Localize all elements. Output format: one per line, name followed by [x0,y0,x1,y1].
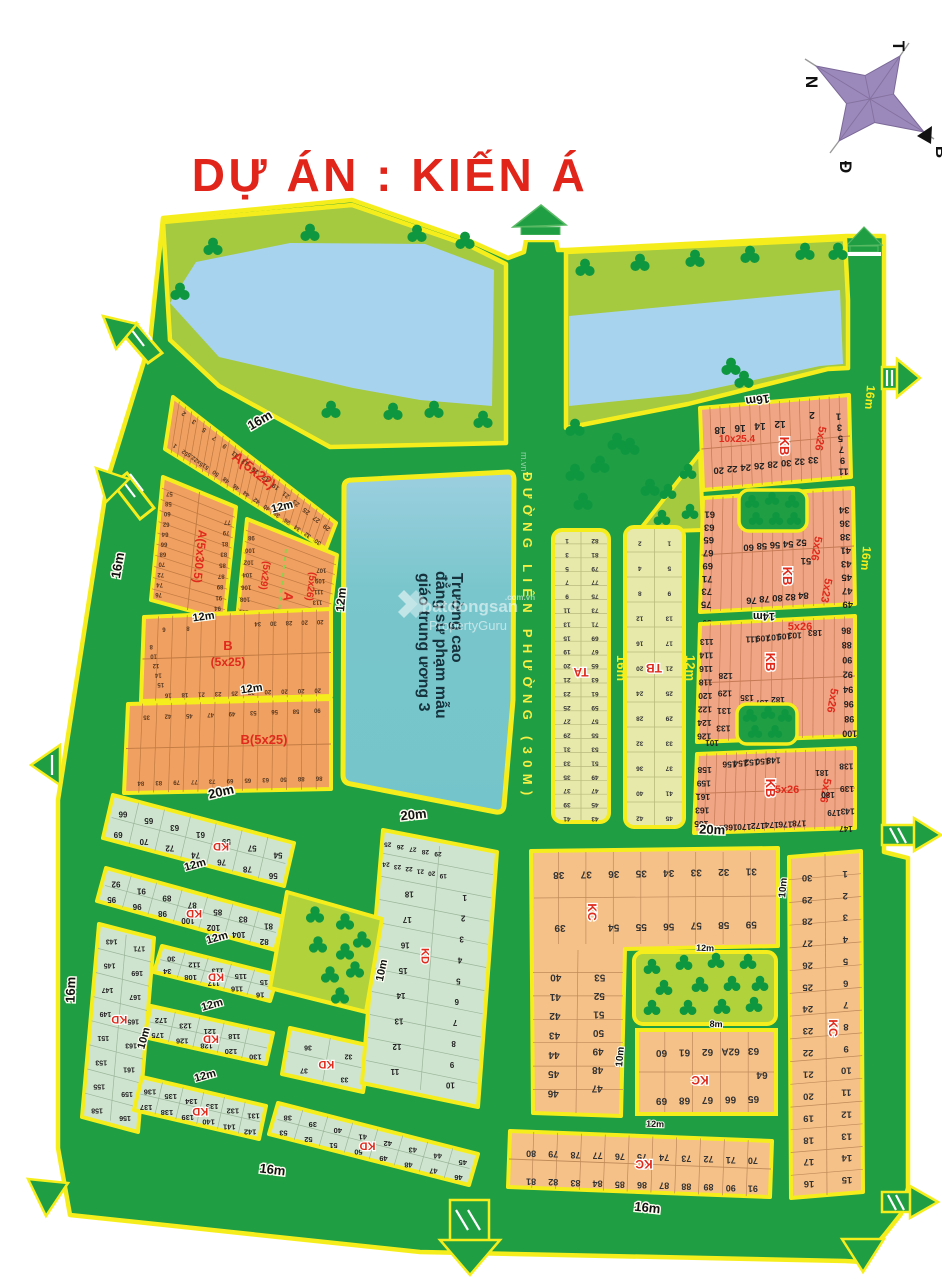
svg-text:84: 84 [593,1179,603,1189]
svg-text:89: 89 [216,583,223,589]
svg-text:KD: KD [111,1013,127,1025]
svg-text:129: 129 [718,688,732,698]
svg-text:98: 98 [844,714,854,724]
svg-text:153: 153 [95,1058,107,1065]
svg-text:4: 4 [638,565,642,572]
svg-text:57: 57 [165,490,172,496]
svg-text:34: 34 [254,620,261,626]
svg-text:44: 44 [433,1152,442,1161]
svg-text:33: 33 [808,454,819,465]
svg-text:22: 22 [727,463,738,474]
svg-text:23: 23 [214,690,221,696]
svg-text:KC: KC [826,1019,840,1037]
svg-text:KD: KD [318,1058,334,1070]
svg-text:KD: KD [208,971,224,983]
svg-text:67: 67 [702,1094,714,1105]
svg-text:49: 49 [591,773,599,780]
svg-text:77: 77 [190,778,197,784]
svg-text:8m: 8m [709,1019,722,1029]
svg-text:76: 76 [217,857,226,866]
svg-text:20m: 20m [699,822,726,838]
svg-text:79: 79 [173,779,180,785]
svg-text:76: 76 [615,1151,625,1161]
svg-text:54: 54 [608,922,620,933]
svg-text:62: 62 [702,1046,714,1057]
svg-text:61: 61 [704,508,715,519]
svg-text:47: 47 [591,1083,603,1094]
svg-text:72: 72 [704,1154,714,1164]
svg-text:36: 36 [304,1043,312,1050]
svg-text:26: 26 [396,843,404,850]
svg-text:41: 41 [665,790,673,797]
svg-text:KC: KC [635,1157,653,1171]
svg-text:148: 148 [766,756,780,766]
svg-text:78: 78 [759,593,770,604]
svg-text:N: N [802,76,821,88]
svg-text:7: 7 [843,999,848,1010]
svg-text:104: 104 [232,930,246,939]
svg-text:25: 25 [384,840,392,847]
svg-text:159: 159 [121,1090,133,1097]
svg-text:128: 128 [718,671,732,681]
svg-text:138: 138 [161,1108,174,1117]
svg-text:14: 14 [396,991,405,1000]
svg-text:73: 73 [681,1153,691,1163]
svg-text:45: 45 [665,815,673,822]
svg-text:90: 90 [842,655,852,665]
svg-text:batdongsan: batdongsan [422,597,518,616]
svg-text:91: 91 [748,1184,758,1194]
svg-text:32: 32 [345,1052,353,1059]
svg-text:69: 69 [591,634,599,641]
svg-text:47: 47 [207,711,214,717]
svg-text:94: 94 [214,605,221,611]
svg-text:37: 37 [580,868,592,879]
svg-text:1: 1 [842,868,848,879]
svg-text:78: 78 [242,864,251,873]
svg-text:169: 169 [131,969,143,976]
svg-text:46: 46 [454,1173,462,1182]
svg-text:KD: KD [203,1033,219,1045]
svg-text:138: 138 [839,761,853,771]
svg-text:151: 151 [97,1034,109,1041]
svg-text:70: 70 [158,561,165,567]
svg-text:159: 159 [696,778,710,788]
svg-text:PropertyGuru: PropertyGuru [429,618,507,633]
svg-text:49: 49 [379,1154,387,1163]
svg-text:44: 44 [548,1049,560,1060]
svg-text:16m: 16m [259,1161,287,1179]
svg-text:59: 59 [591,704,599,711]
svg-text:8: 8 [451,1039,456,1048]
svg-text:48: 48 [404,1160,412,1169]
svg-text:139: 139 [181,1113,194,1122]
svg-text:101: 101 [705,738,719,747]
svg-text:28: 28 [636,715,644,722]
svg-text:82: 82 [785,591,796,602]
svg-text:24: 24 [802,1003,813,1014]
svg-text:72: 72 [157,571,164,577]
svg-text:57: 57 [690,920,702,931]
svg-text:64: 64 [161,530,168,536]
svg-text:174: 174 [764,820,778,830]
svg-text:53: 53 [591,746,599,753]
svg-text:30: 30 [167,955,175,964]
svg-text:18: 18 [714,424,726,435]
svg-text:69: 69 [113,830,122,839]
svg-text:86: 86 [637,1180,647,1190]
svg-text:83: 83 [220,551,227,557]
svg-text:72: 72 [165,844,174,853]
svg-text:122: 122 [698,704,712,714]
svg-text:79: 79 [222,529,229,535]
svg-text:170: 170 [737,822,751,832]
svg-text:5: 5 [456,976,461,985]
svg-text:T: T [889,41,908,52]
svg-text:50: 50 [279,775,286,781]
svg-text:53: 53 [279,1128,287,1137]
svg-text:24: 24 [636,690,644,697]
svg-text:58: 58 [718,919,730,930]
svg-text:123: 123 [179,1021,192,1030]
svg-text:10: 10 [150,652,157,658]
svg-text:35: 35 [563,773,571,780]
svg-text:42: 42 [636,815,644,822]
svg-text:37: 37 [300,1066,308,1073]
svg-text:120: 120 [698,691,712,701]
svg-text:39: 39 [554,922,566,933]
svg-text:88: 88 [297,775,304,781]
svg-text:100: 100 [244,546,255,552]
svg-text:126: 126 [176,1036,189,1045]
svg-text:16m: 16m [858,546,874,571]
svg-text:112: 112 [188,961,200,970]
svg-text:(5x25): (5x25) [211,655,246,669]
svg-text:65: 65 [144,816,153,825]
svg-text:15: 15 [563,634,571,641]
svg-text:20: 20 [428,870,436,877]
svg-text:69: 69 [656,1095,668,1106]
svg-text:79: 79 [591,565,599,572]
svg-text:7: 7 [839,444,844,455]
svg-text:120: 120 [225,1047,238,1056]
svg-text:32: 32 [718,866,730,877]
svg-text:94: 94 [843,684,853,694]
svg-text:KB: KB [763,653,778,672]
svg-text:34: 34 [663,867,675,878]
svg-text:33: 33 [665,740,673,747]
svg-text:58: 58 [292,707,299,713]
svg-text:81: 81 [264,921,273,930]
svg-text:25: 25 [231,689,238,695]
svg-text:113: 113 [700,637,714,647]
svg-text:118: 118 [699,677,713,687]
svg-text:58: 58 [757,540,768,551]
svg-text:116: 116 [231,985,243,994]
svg-text:98: 98 [158,909,167,918]
svg-text:31: 31 [745,865,757,876]
svg-text:38: 38 [553,869,565,880]
svg-text:KD: KD [419,948,431,964]
svg-text:87: 87 [659,1181,669,1191]
svg-text:172: 172 [155,1016,168,1025]
svg-text:B: B [932,146,942,158]
svg-text:181: 181 [815,768,829,777]
svg-text:66: 66 [725,1094,737,1105]
svg-text:124: 124 [697,718,711,728]
svg-text:143: 143 [106,938,118,945]
svg-text:28: 28 [285,619,292,625]
svg-text:15: 15 [157,681,164,687]
svg-text:45: 45 [591,801,599,808]
svg-text:20: 20 [281,688,288,694]
svg-text:71: 71 [726,1155,736,1165]
svg-text:91: 91 [215,594,222,600]
svg-text:13: 13 [841,1130,852,1141]
svg-text:19: 19 [563,648,571,655]
svg-text:11: 11 [390,1067,399,1076]
svg-text:35: 35 [143,714,150,720]
svg-text:17: 17 [804,1156,815,1167]
svg-text:115: 115 [235,972,247,981]
svg-text:42: 42 [384,1139,392,1148]
svg-text:96: 96 [844,699,854,709]
svg-text:64: 64 [756,1069,768,1080]
svg-text:54: 54 [273,850,282,859]
svg-text:5: 5 [565,565,569,572]
svg-text:1: 1 [835,411,841,422]
svg-text:17: 17 [402,915,411,924]
svg-text:54: 54 [782,538,793,549]
svg-text:23: 23 [563,690,571,697]
svg-text:71: 71 [701,573,712,584]
svg-text:1: 1 [667,540,671,547]
svg-text:77: 77 [591,579,599,586]
svg-text:63: 63 [262,776,269,782]
svg-text:đẳng sư phạm mẫu: đẳng sư phạm mẫu [432,571,451,719]
svg-text:143: 143 [840,807,854,817]
svg-text:32: 32 [636,740,644,747]
svg-text:155: 155 [93,1083,105,1090]
svg-text:KD: KD [213,840,229,852]
svg-text:22: 22 [405,865,413,872]
svg-text:4: 4 [842,934,848,945]
svg-text:75: 75 [700,599,711,610]
svg-text:27: 27 [802,938,813,949]
svg-text:12: 12 [392,1042,401,1051]
svg-text:2: 2 [843,890,848,901]
svg-text:145: 145 [104,962,116,969]
svg-text:49: 49 [228,710,235,716]
svg-text:12: 12 [774,418,786,429]
svg-text:116: 116 [699,664,713,674]
svg-text:68: 68 [159,551,166,557]
svg-text:20: 20 [713,464,724,475]
svg-text:73: 73 [701,586,712,597]
svg-text:6: 6 [843,977,848,988]
svg-text:57: 57 [591,718,599,725]
svg-text:39: 39 [309,1120,317,1129]
svg-text:83: 83 [570,1178,580,1188]
svg-text:29: 29 [802,894,813,905]
svg-text:29: 29 [434,850,442,857]
svg-text:3: 3 [459,935,464,944]
svg-text:45: 45 [548,1068,560,1079]
svg-text:10m: 10m [777,877,790,898]
svg-text:45: 45 [185,712,192,718]
svg-text:89: 89 [162,893,171,902]
svg-text:92: 92 [843,670,853,680]
svg-text:16: 16 [734,422,746,433]
svg-text:12m: 12m [696,943,714,954]
svg-text:43: 43 [591,815,599,822]
svg-text:12: 12 [636,615,644,622]
svg-text:83: 83 [155,779,162,785]
svg-text:70: 70 [748,1156,758,1166]
svg-text:28: 28 [767,458,778,469]
svg-text:67: 67 [703,547,714,558]
svg-text:90: 90 [726,1183,736,1193]
svg-text:12: 12 [841,1108,852,1119]
svg-text:36: 36 [636,765,644,772]
svg-text:180: 180 [821,790,835,799]
svg-text:9: 9 [565,593,569,600]
svg-text:11: 11 [841,1087,852,1098]
svg-text:17: 17 [665,640,673,647]
svg-text:9: 9 [449,1060,454,1069]
svg-text:18: 18 [404,890,413,899]
svg-text:55: 55 [591,732,599,739]
svg-text:175: 175 [151,1031,164,1040]
svg-text:1: 1 [565,537,569,544]
svg-text:TB: TB [646,661,662,675]
svg-text:135: 135 [740,693,754,702]
svg-text:8: 8 [843,1021,848,1032]
svg-text:37: 37 [665,765,673,772]
svg-text:31: 31 [563,746,571,753]
svg-text:16: 16 [804,1178,815,1189]
svg-text:66: 66 [160,541,167,547]
svg-text:66: 66 [118,809,127,818]
svg-text:96: 96 [132,902,141,911]
svg-text:38: 38 [284,1113,292,1122]
svg-text:9: 9 [843,1043,848,1054]
svg-text:183: 183 [808,628,822,638]
svg-text:36: 36 [608,868,620,879]
svg-text:51: 51 [593,1008,605,1019]
svg-text:60: 60 [163,510,170,516]
svg-text:81: 81 [221,540,228,546]
svg-text:30: 30 [781,457,792,468]
svg-text:34: 34 [838,504,849,515]
svg-text:14: 14 [754,420,766,431]
svg-text:57: 57 [247,844,256,853]
svg-text:33: 33 [341,1075,349,1082]
svg-text:68: 68 [679,1094,691,1105]
svg-text:16: 16 [636,640,644,647]
svg-text:47: 47 [429,1167,437,1176]
svg-text:22: 22 [803,1047,814,1058]
svg-text:167: 167 [129,993,141,1000]
svg-text:58: 58 [164,500,171,506]
svg-text:87: 87 [217,572,224,578]
svg-text:16: 16 [164,692,171,698]
svg-text:48: 48 [592,1064,604,1075]
svg-text:109: 109 [314,577,325,583]
svg-text:147: 147 [839,824,853,833]
svg-text:2: 2 [809,409,815,420]
svg-text:77: 77 [223,518,230,524]
svg-text:56: 56 [770,539,781,550]
svg-text:3: 3 [843,912,848,923]
svg-text:42: 42 [549,1010,561,1021]
svg-text:20: 20 [803,1091,814,1102]
svg-text:2: 2 [638,540,642,547]
svg-text:40: 40 [636,790,644,797]
svg-text:KC: KC [585,903,599,921]
svg-text:63: 63 [170,823,179,832]
svg-text:26: 26 [802,959,813,970]
svg-text:81: 81 [526,1176,536,1186]
svg-text:52: 52 [593,990,605,1001]
svg-text:5: 5 [842,955,848,966]
svg-text:52: 52 [304,1135,312,1144]
svg-text:133: 133 [716,723,730,733]
svg-text:77: 77 [593,1151,603,1161]
svg-text:6: 6 [454,997,459,1006]
svg-text:51: 51 [329,1141,337,1150]
svg-text:50: 50 [593,1027,605,1038]
svg-text:82: 82 [591,537,599,544]
svg-text:13: 13 [394,1016,403,1025]
svg-text:149: 149 [99,1010,111,1017]
svg-text:12m: 12m [683,655,698,681]
svg-text:26: 26 [754,460,765,471]
svg-text:33: 33 [563,759,571,766]
svg-text:67: 67 [591,648,599,655]
svg-text:49: 49 [592,1046,604,1057]
svg-text:40: 40 [550,972,562,983]
svg-text:19: 19 [439,872,447,879]
svg-text:63: 63 [748,1045,760,1056]
svg-text:65: 65 [591,662,599,669]
svg-text:33: 33 [690,866,702,877]
svg-text:20: 20 [297,687,304,693]
svg-text:10m: 10m [614,1046,627,1067]
svg-text:82: 82 [259,937,268,946]
svg-text:KB: KB [777,437,792,456]
svg-text:131: 131 [247,1111,260,1120]
svg-text:20: 20 [636,665,644,672]
svg-text:131: 131 [717,706,731,716]
svg-text:10: 10 [445,1081,454,1090]
svg-text:75: 75 [591,593,599,600]
svg-text:41: 41 [549,991,561,1002]
svg-text:158: 158 [91,1107,103,1114]
svg-text:118: 118 [228,1032,240,1041]
svg-text:KC: KC [691,1073,709,1087]
svg-text:158: 158 [697,765,711,775]
svg-text:168: 168 [723,823,737,833]
svg-text:41: 41 [840,544,851,555]
svg-text:3: 3 [837,422,842,433]
svg-text:20: 20 [563,662,571,669]
svg-text:171: 171 [133,945,145,952]
svg-text:14m: 14m [753,610,775,622]
svg-text:29: 29 [563,732,571,739]
svg-text:114: 114 [699,650,713,660]
svg-text:51: 51 [800,555,811,566]
